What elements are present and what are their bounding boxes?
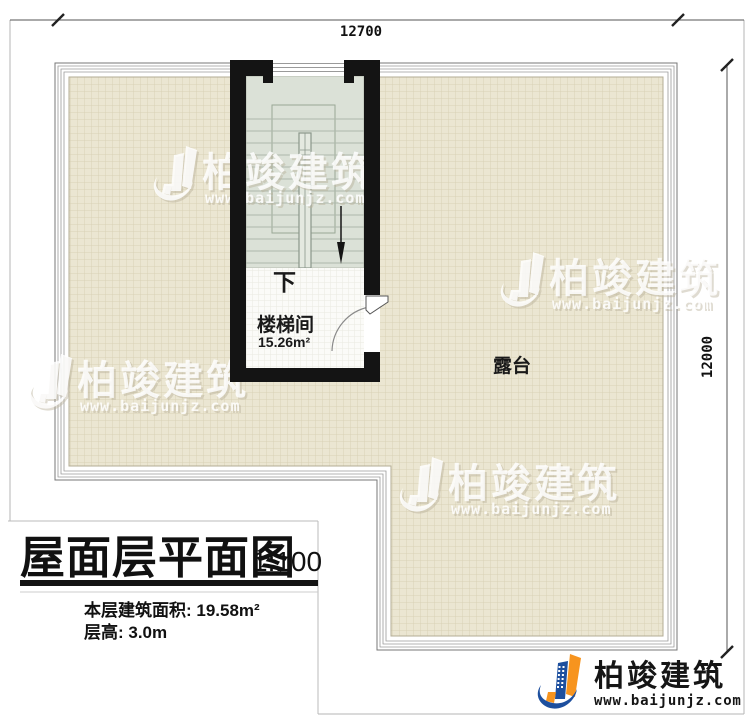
- wall-bottom: [230, 368, 380, 382]
- brand-logo-icon: [538, 654, 581, 709]
- floor-plan-page: 柏竣建筑 www.baijunjz.com 12700 12000: [0, 0, 750, 720]
- dimension-top: 12700: [10, 14, 744, 40]
- logo-brand-text: 柏竣建筑: [594, 659, 726, 693]
- floor-area-text: 本层建筑面积: 19.58m²: [84, 600, 260, 620]
- logo-url-text: www.baijunjz.com: [594, 693, 742, 709]
- floor-height-text: 层高: 3.0m: [84, 622, 167, 642]
- brand-logo: 柏竣建筑 www.baijunjz.com: [538, 654, 742, 709]
- dimension-top-value: 12700: [340, 24, 382, 40]
- window-jamb: [263, 60, 273, 83]
- stair-window: [273, 60, 344, 76]
- dimension-right: 12000: [700, 59, 733, 658]
- title-block: 屋面层平面图 1:100 本层建筑面积: 19.58m² 层高: 3.0m: [0, 521, 322, 720]
- stair-room-label: 楼梯间: [257, 313, 314, 336]
- title-underline: [20, 580, 318, 586]
- stair-room-area: 15.26m²: [258, 334, 310, 350]
- window-jamb: [344, 60, 354, 83]
- drawing-scale: 1:100: [252, 546, 322, 577]
- stair-direction-label: 下: [273, 269, 296, 295]
- terrace-label: 露台: [493, 354, 531, 377]
- wall-right-upper: [364, 60, 380, 295]
- dimension-right-value: 12000: [700, 336, 716, 378]
- floor-plan-canvas: 柏竣建筑 www.baijunjz.com 12700 12000: [0, 0, 750, 720]
- wall-left: [230, 60, 246, 382]
